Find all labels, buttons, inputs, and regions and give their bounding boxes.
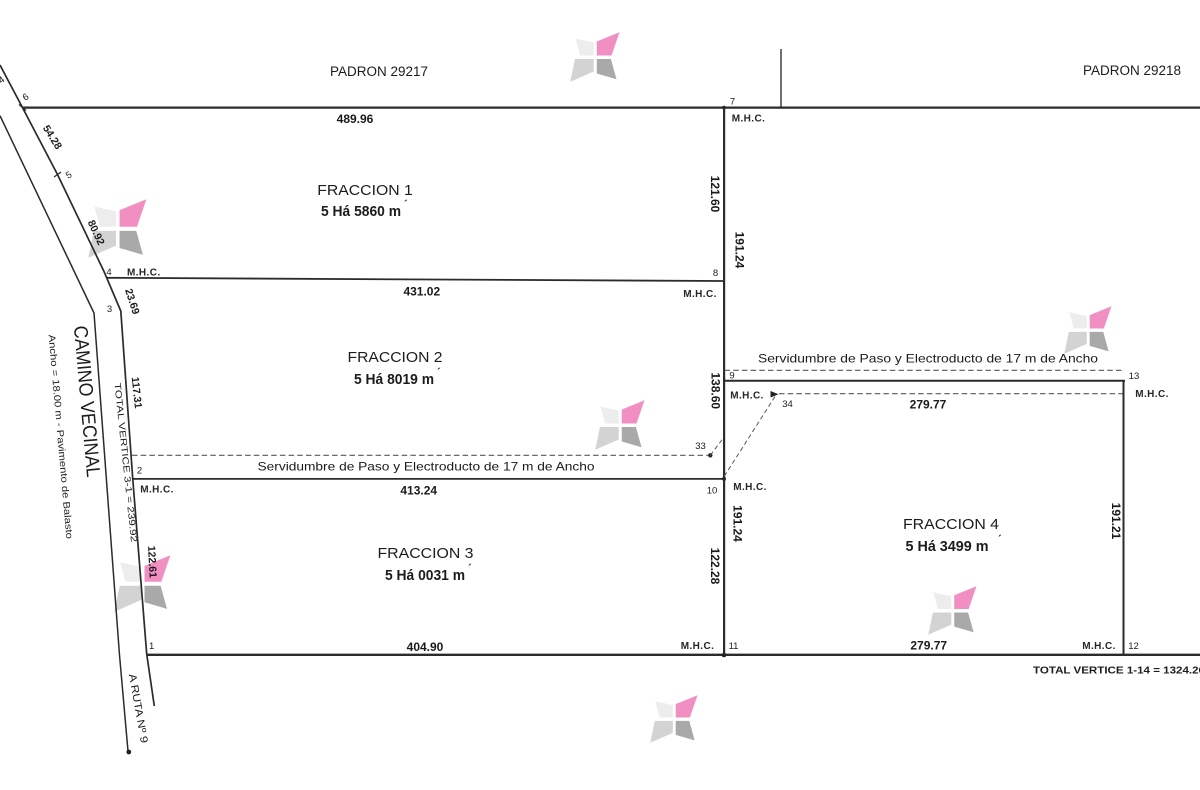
svg-text:Servidumbre de Paso y Electrod: Servidumbre de Paso y Electroducto de 17… — [758, 352, 1098, 366]
svg-text:5 Há 3499 m: 5 Há 3499 m — [906, 538, 989, 555]
svg-text:´: ´ — [998, 534, 1002, 546]
svg-text:138.60: 138.60 — [709, 372, 723, 409]
svg-text:FRACCION 2: FRACCION 2 — [348, 349, 443, 366]
svg-text:FRACCION 4: FRACCION 4 — [903, 516, 999, 533]
svg-text:191.21: 191.21 — [1109, 503, 1123, 540]
svg-text:M.H.C.: M.H.C. — [127, 268, 161, 279]
svg-text:413.24: 413.24 — [400, 483, 437, 497]
svg-text:´: ´ — [437, 367, 441, 379]
svg-text:10: 10 — [707, 486, 718, 497]
svg-text:PADRON 29218: PADRON 29218 — [1083, 63, 1181, 78]
svg-text:TOTAL VERTICE 1-14 = 1324.26: TOTAL VERTICE 1-14 = 1324.26 — [1033, 666, 1200, 677]
svg-text:33: 33 — [695, 441, 706, 452]
svg-text:8: 8 — [713, 268, 718, 279]
svg-text:´: ´ — [404, 199, 408, 211]
svg-text:1: 1 — [149, 641, 154, 652]
svg-text:9: 9 — [729, 371, 734, 382]
svg-text:279.77: 279.77 — [910, 639, 947, 653]
svg-text:´: ´ — [468, 563, 472, 575]
svg-text:191.24: 191.24 — [733, 232, 747, 269]
svg-text:7: 7 — [730, 97, 735, 108]
svg-text:13: 13 — [1129, 371, 1140, 382]
svg-text:M.H.C.: M.H.C. — [681, 641, 715, 652]
svg-text:Servidumbre de Paso y Electrod: Servidumbre de Paso y Electroducto de 17… — [258, 460, 595, 474]
svg-text:3: 3 — [107, 304, 112, 315]
svg-text:34: 34 — [782, 399, 793, 410]
svg-text:122.28: 122.28 — [708, 548, 722, 585]
svg-text:FRACCION 1: FRACCION 1 — [317, 182, 413, 199]
svg-text:11: 11 — [729, 641, 739, 652]
svg-text:121.60: 121.60 — [708, 176, 722, 213]
svg-text:FRACCION 3: FRACCION 3 — [378, 545, 474, 562]
svg-text:431.02: 431.02 — [403, 284, 440, 298]
svg-text:404.90: 404.90 — [407, 640, 444, 654]
svg-text:12: 12 — [1128, 641, 1139, 652]
svg-text:M.H.C.: M.H.C. — [683, 289, 717, 300]
svg-text:2: 2 — [137, 466, 142, 477]
svg-text:191.24: 191.24 — [731, 505, 745, 542]
svg-text:5 Há 0031 m: 5 Há 0031 m — [385, 567, 465, 584]
svg-text:PADRON 29217: PADRON 29217 — [330, 64, 428, 79]
svg-text:M.H.C.: M.H.C. — [1135, 389, 1169, 400]
svg-text:M.H.C.: M.H.C. — [140, 485, 174, 496]
svg-text:M.H.C.: M.H.C. — [730, 391, 764, 402]
svg-text:4: 4 — [106, 267, 111, 278]
svg-text:122.61: 122.61 — [145, 545, 159, 578]
svg-text:M.H.C.: M.H.C. — [733, 482, 767, 493]
svg-text:5 Há 8019 m: 5 Há 8019 m — [354, 371, 434, 388]
svg-text:489.96: 489.96 — [337, 112, 374, 126]
svg-text:279.77: 279.77 — [910, 397, 947, 411]
svg-text:M.H.C.: M.H.C. — [732, 114, 766, 125]
svg-text:M.H.C.: M.H.C. — [1082, 641, 1116, 652]
svg-text:5 Há 5860 m: 5 Há 5860 m — [321, 203, 401, 220]
